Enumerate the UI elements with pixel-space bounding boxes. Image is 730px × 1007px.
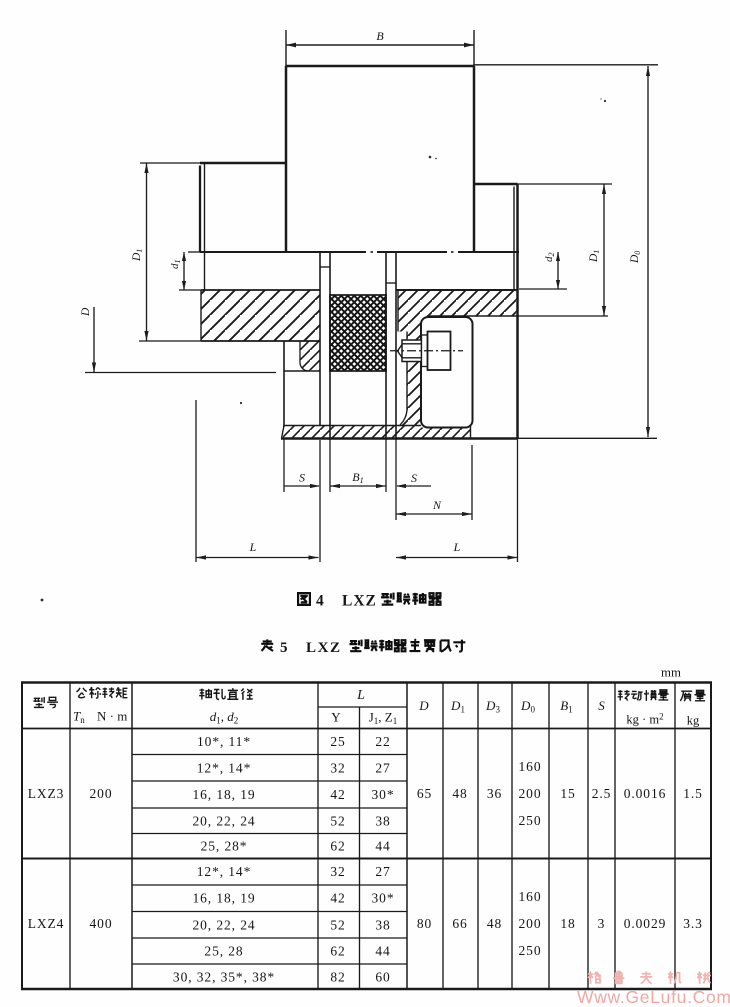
svg-text:27: 27 bbox=[375, 761, 390, 776]
svg-text:L: L bbox=[453, 540, 461, 554]
svg-text:B1: B1 bbox=[560, 698, 572, 715]
svg-text:20, 22, 24: 20, 22, 24 bbox=[193, 814, 256, 829]
svg-text:82: 82 bbox=[330, 970, 345, 985]
svg-text:20, 22, 24: 20, 22, 24 bbox=[193, 918, 256, 933]
svg-text:48: 48 bbox=[487, 916, 502, 931]
svg-text:4: 4 bbox=[316, 593, 324, 610]
svg-text:32: 32 bbox=[330, 761, 345, 776]
svg-text:LXZ4: LXZ4 bbox=[28, 916, 65, 931]
svg-text:0.0016: 0.0016 bbox=[624, 786, 667, 801]
svg-text:3: 3 bbox=[598, 916, 606, 931]
svg-text:42: 42 bbox=[330, 891, 345, 906]
svg-text:J1, Z1: J1, Z1 bbox=[369, 710, 398, 727]
svg-text:32: 32 bbox=[330, 864, 345, 879]
svg-text:D1: D1 bbox=[450, 698, 465, 715]
svg-text:44: 44 bbox=[375, 944, 390, 959]
svg-text:400: 400 bbox=[90, 916, 113, 931]
svg-text:65: 65 bbox=[417, 786, 432, 801]
svg-text:25, 28: 25, 28 bbox=[204, 944, 243, 959]
svg-text:12*, 14*: 12*, 14* bbox=[197, 761, 251, 776]
svg-text:250: 250 bbox=[519, 943, 542, 958]
svg-text:200: 200 bbox=[519, 786, 542, 801]
svg-text:D: D bbox=[80, 307, 92, 317]
svg-text:22: 22 bbox=[375, 734, 390, 749]
svg-text:Tn: Tn bbox=[73, 709, 85, 726]
svg-text:LXZ: LXZ bbox=[342, 593, 377, 610]
svg-text:38: 38 bbox=[375, 814, 390, 829]
svg-text:D0: D0 bbox=[629, 251, 642, 264]
svg-text:62: 62 bbox=[330, 944, 345, 959]
svg-text:18: 18 bbox=[560, 916, 575, 931]
svg-text:60: 60 bbox=[375, 970, 390, 985]
svg-text:kg: kg bbox=[687, 714, 700, 728]
svg-text:38: 38 bbox=[375, 918, 390, 933]
svg-text:3.3: 3.3 bbox=[683, 916, 703, 931]
svg-text:Www.GeLufu.Com: Www.GeLufu.Com bbox=[577, 987, 730, 1007]
svg-text:30, 32, 35*, 38*: 30, 32, 35*, 38* bbox=[173, 970, 275, 985]
svg-text:D3: D3 bbox=[485, 698, 500, 715]
svg-text:D1: D1 bbox=[588, 250, 601, 263]
svg-text:B: B bbox=[376, 29, 384, 43]
svg-text:160: 160 bbox=[519, 889, 542, 904]
svg-text:15: 15 bbox=[560, 786, 575, 801]
svg-text:D: D bbox=[418, 698, 429, 713]
svg-text:Y: Y bbox=[331, 710, 341, 725]
svg-text:10*, 11*: 10*, 11* bbox=[197, 734, 251, 749]
svg-text:5: 5 bbox=[280, 640, 288, 656]
svg-text:44: 44 bbox=[375, 839, 390, 854]
svg-text:62: 62 bbox=[330, 839, 345, 854]
svg-text:LXZ: LXZ bbox=[306, 640, 342, 656]
svg-text:kg · m2: kg · m2 bbox=[626, 712, 663, 727]
svg-text:52: 52 bbox=[330, 814, 345, 829]
svg-text:L: L bbox=[356, 687, 365, 702]
svg-text:25, 28*: 25, 28* bbox=[201, 839, 248, 854]
svg-text:d1, d2: d1, d2 bbox=[210, 709, 239, 726]
svg-text:200: 200 bbox=[90, 786, 113, 801]
svg-text:N: N bbox=[432, 498, 442, 512]
svg-text:mm: mm bbox=[661, 666, 681, 680]
svg-text:160: 160 bbox=[519, 759, 542, 774]
svg-text:52: 52 bbox=[330, 918, 345, 933]
svg-text:0.0029: 0.0029 bbox=[624, 916, 667, 931]
svg-text:B1: B1 bbox=[352, 470, 364, 485]
svg-text:48: 48 bbox=[452, 786, 467, 801]
svg-text:1.5: 1.5 bbox=[683, 786, 703, 801]
svg-text:30*: 30* bbox=[372, 787, 395, 802]
svg-text:2.5: 2.5 bbox=[592, 786, 612, 801]
svg-text:S: S bbox=[598, 698, 605, 713]
svg-text:D0: D0 bbox=[520, 698, 535, 715]
svg-text:d2: d2 bbox=[543, 253, 556, 263]
svg-text:S: S bbox=[411, 471, 417, 485]
svg-text:S: S bbox=[299, 471, 305, 485]
svg-text:30*: 30* bbox=[372, 891, 395, 906]
svg-text:LXZ3: LXZ3 bbox=[28, 786, 65, 801]
svg-text:36: 36 bbox=[487, 786, 502, 801]
svg-text:D1: D1 bbox=[131, 249, 144, 262]
svg-text:12*, 14*: 12*, 14* bbox=[197, 864, 251, 879]
svg-text:16, 18, 19: 16, 18, 19 bbox=[193, 891, 256, 906]
svg-text:66: 66 bbox=[452, 916, 467, 931]
svg-text:L: L bbox=[249, 540, 257, 554]
svg-text:200: 200 bbox=[519, 916, 542, 931]
svg-text:250: 250 bbox=[519, 813, 542, 828]
svg-text:d1: d1 bbox=[169, 260, 182, 270]
svg-text:25: 25 bbox=[330, 734, 345, 749]
svg-text:80: 80 bbox=[417, 916, 432, 931]
svg-text:N · m: N · m bbox=[97, 709, 127, 724]
svg-text:27: 27 bbox=[375, 864, 390, 879]
svg-text:16, 18, 19: 16, 18, 19 bbox=[193, 787, 256, 802]
svg-text:42: 42 bbox=[330, 787, 345, 802]
